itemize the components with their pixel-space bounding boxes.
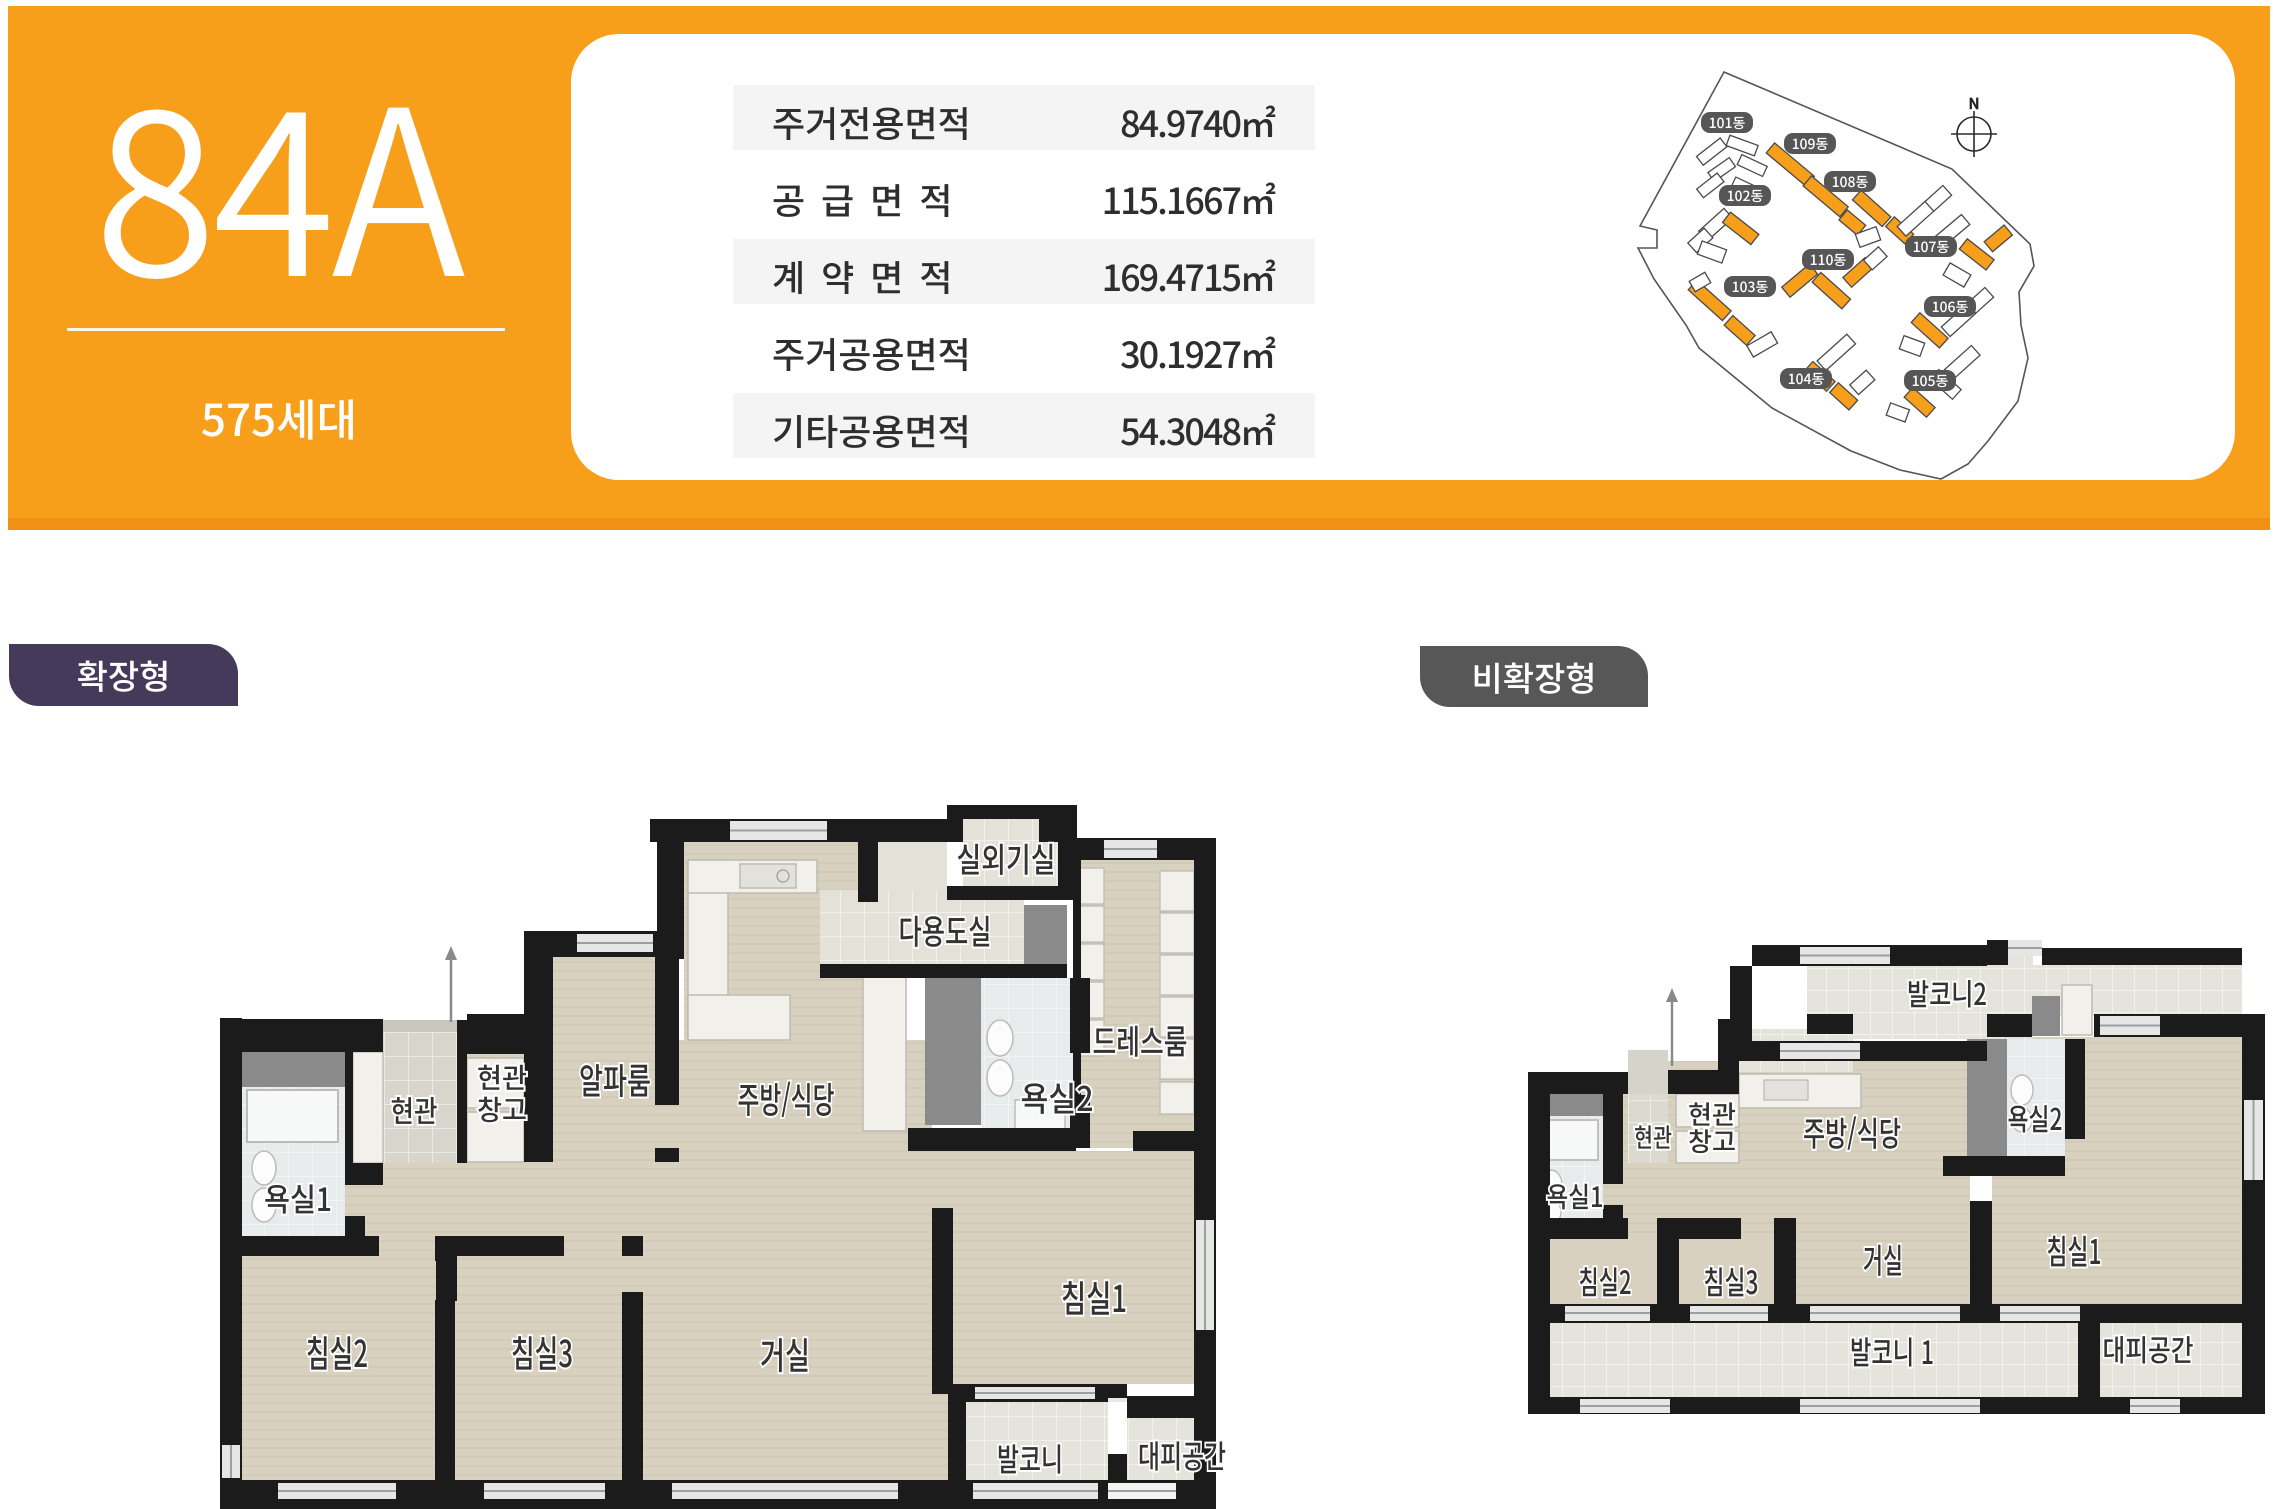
svg-text:107동: 107동 — [1913, 237, 1950, 257]
svg-text:침실3: 침실3 — [1704, 1258, 1759, 1304]
svg-text:108동: 108동 — [1832, 172, 1869, 192]
svg-text:다용도실: 다용도실 — [899, 905, 992, 954]
svg-text:110동: 110동 — [1810, 250, 1847, 270]
svg-text:109동: 109동 — [1792, 134, 1829, 154]
svg-text:침실1: 침실1 — [2047, 1225, 2102, 1274]
svg-text:101동: 101동 — [1709, 113, 1746, 133]
svg-text:주방/식당: 주방/식당 — [738, 1072, 835, 1124]
svg-text:현관: 현관 — [1634, 1118, 1672, 1155]
svg-text:침실2: 침실2 — [1579, 1258, 1632, 1304]
svg-text:102동: 102동 — [1727, 186, 1764, 206]
svg-text:드레스룸: 드레스룸 — [1093, 1015, 1188, 1064]
svg-text:104동: 104동 — [1788, 369, 1825, 389]
svg-text:침실1: 침실1 — [1061, 1269, 1127, 1323]
svg-text:103동: 103동 — [1732, 277, 1769, 297]
svg-text:욕실1: 욕실1 — [1547, 1176, 1604, 1216]
svg-text:발코니 1: 발코니 1 — [1850, 1328, 1934, 1374]
svg-text:침실3: 침실3 — [511, 1324, 573, 1378]
svg-text:욕실1: 욕실1 — [264, 1175, 332, 1221]
svg-text:침실2: 침실2 — [306, 1324, 368, 1378]
svg-text:대피공간: 대피공간 — [1138, 1432, 1226, 1478]
svg-text:욕실2: 욕실2 — [2008, 1095, 2063, 1139]
svg-text:발코니2: 발코니2 — [1907, 970, 1987, 1014]
svg-text:창고: 창고 — [477, 1089, 527, 1129]
svg-text:105동: 105동 — [1912, 371, 1949, 391]
svg-text:106동: 106동 — [1932, 297, 1969, 317]
svg-text:N: N — [1968, 93, 1979, 114]
svg-text:창고: 창고 — [1688, 1122, 1736, 1159]
svg-text:알파룸: 알파룸 — [579, 1053, 651, 1105]
svg-text:주방/식당: 주방/식당 — [1803, 1107, 1901, 1156]
svg-text:현관: 현관 — [391, 1087, 438, 1131]
svg-text:실외기실: 실외기실 — [957, 833, 1056, 882]
svg-text:발코니: 발코니 — [997, 1435, 1063, 1481]
svg-text:욕실2: 욕실2 — [1021, 1072, 1094, 1121]
svg-text:거실: 거실 — [760, 1326, 810, 1380]
svg-text:대피공간: 대피공간 — [2103, 1326, 2194, 1370]
svg-text:거실: 거실 — [1863, 1234, 1903, 1283]
